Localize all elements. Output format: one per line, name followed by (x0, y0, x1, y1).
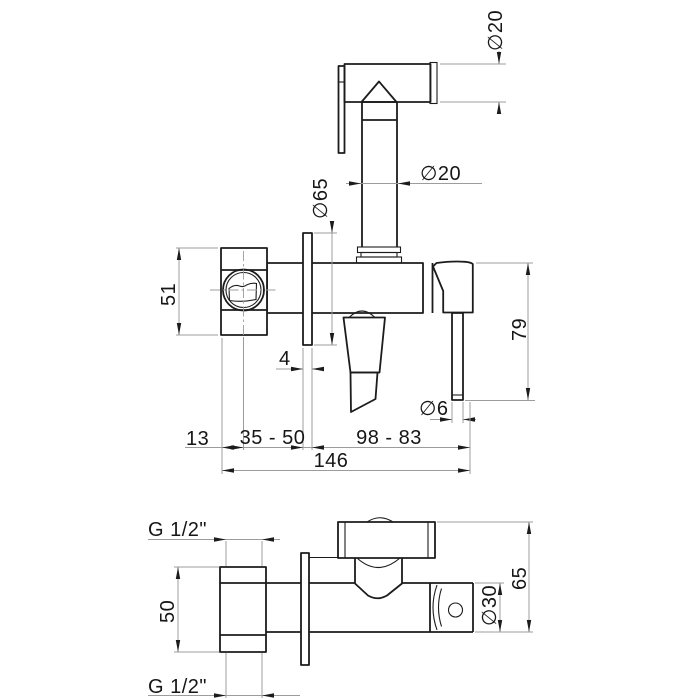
dim-label-g12-top: G 1/2" (148, 519, 207, 541)
front-dome-arc-inner (439, 589, 442, 627)
lever-handle (433, 261, 473, 400)
shower-cone-insert (362, 82, 397, 103)
dim-label-79: 79 (509, 318, 531, 341)
shower-face-plate (339, 66, 345, 153)
wall-flange (303, 233, 312, 345)
dim-label-65: 65 (509, 567, 531, 590)
dim-label-35-50: 35 - 50 (240, 427, 306, 449)
front-shower-holder (338, 518, 435, 599)
dim-146: 146 (222, 450, 470, 473)
dim-label-98-83: 98 - 83 (356, 427, 422, 449)
technical-drawing: ∅20 ∅20 ∅65 51 (0, 0, 700, 700)
front-valve-body (220, 567, 473, 652)
drawing-canvas: ∅20 ∅20 ∅65 51 (0, 0, 700, 700)
lever-mount-edge (433, 267, 443, 292)
hose-outlet (344, 311, 386, 412)
dim-dia6-rod: ∅6 (419, 398, 476, 423)
dim-label-dia20-head: ∅20 (485, 10, 507, 51)
side-view: ∅20 ∅20 ∅65 51 (158, 10, 535, 474)
outlet-cone (344, 318, 386, 373)
dim-dia65-flange: ∅65 (310, 178, 337, 345)
dim-51: 51 (158, 248, 218, 335)
connector-nut-ring-2 (361, 253, 397, 258)
lever-rod (452, 313, 463, 400)
outlet-dome (349, 311, 375, 318)
dim-79: 79 (465, 263, 535, 401)
dim-label-dia6: ∅6 (419, 398, 449, 420)
dim-label-50: 50 (157, 600, 179, 623)
dim-dia20-head: ∅20 (440, 10, 507, 114)
dim-g12-bottom: G 1/2" (148, 653, 300, 698)
valve-body (210, 248, 433, 337)
front-dome-arc-outer (433, 585, 437, 630)
dim-label-dia65: ∅65 (310, 178, 332, 219)
dim-label-146: 146 (314, 450, 349, 472)
dim-label-dia30: ∅30 (479, 585, 501, 626)
shower-head-body (345, 64, 431, 102)
dim-label-4: 4 (279, 348, 291, 370)
front-inlet-block (220, 567, 266, 652)
holder-bar (338, 522, 435, 558)
lever-mount (433, 261, 473, 312)
dim-label-g12-bottom: G 1/2" (148, 676, 207, 698)
dim-label-51: 51 (158, 283, 180, 306)
dim-dia20-tube: ∅20 (346, 163, 482, 186)
dim-label-13: 13 (186, 428, 209, 450)
dim-label-dia20-tube: ∅20 (420, 163, 461, 185)
body-barrel (267, 263, 423, 313)
dim-50: 50 (157, 567, 219, 652)
connector-nut-ring-1 (358, 247, 401, 253)
dim-g12-top: G 1/2" (148, 519, 280, 566)
front-lever-pivot (449, 603, 463, 617)
front-wall-flange (301, 553, 309, 665)
hose-stub (351, 373, 378, 413)
side-view-dimensions: ∅20 ∅20 ∅65 51 (158, 10, 535, 474)
holder-cup (355, 558, 402, 598)
front-view: G 1/2" 50 G 1/2" (148, 518, 533, 698)
inlet-block (221, 248, 267, 335)
